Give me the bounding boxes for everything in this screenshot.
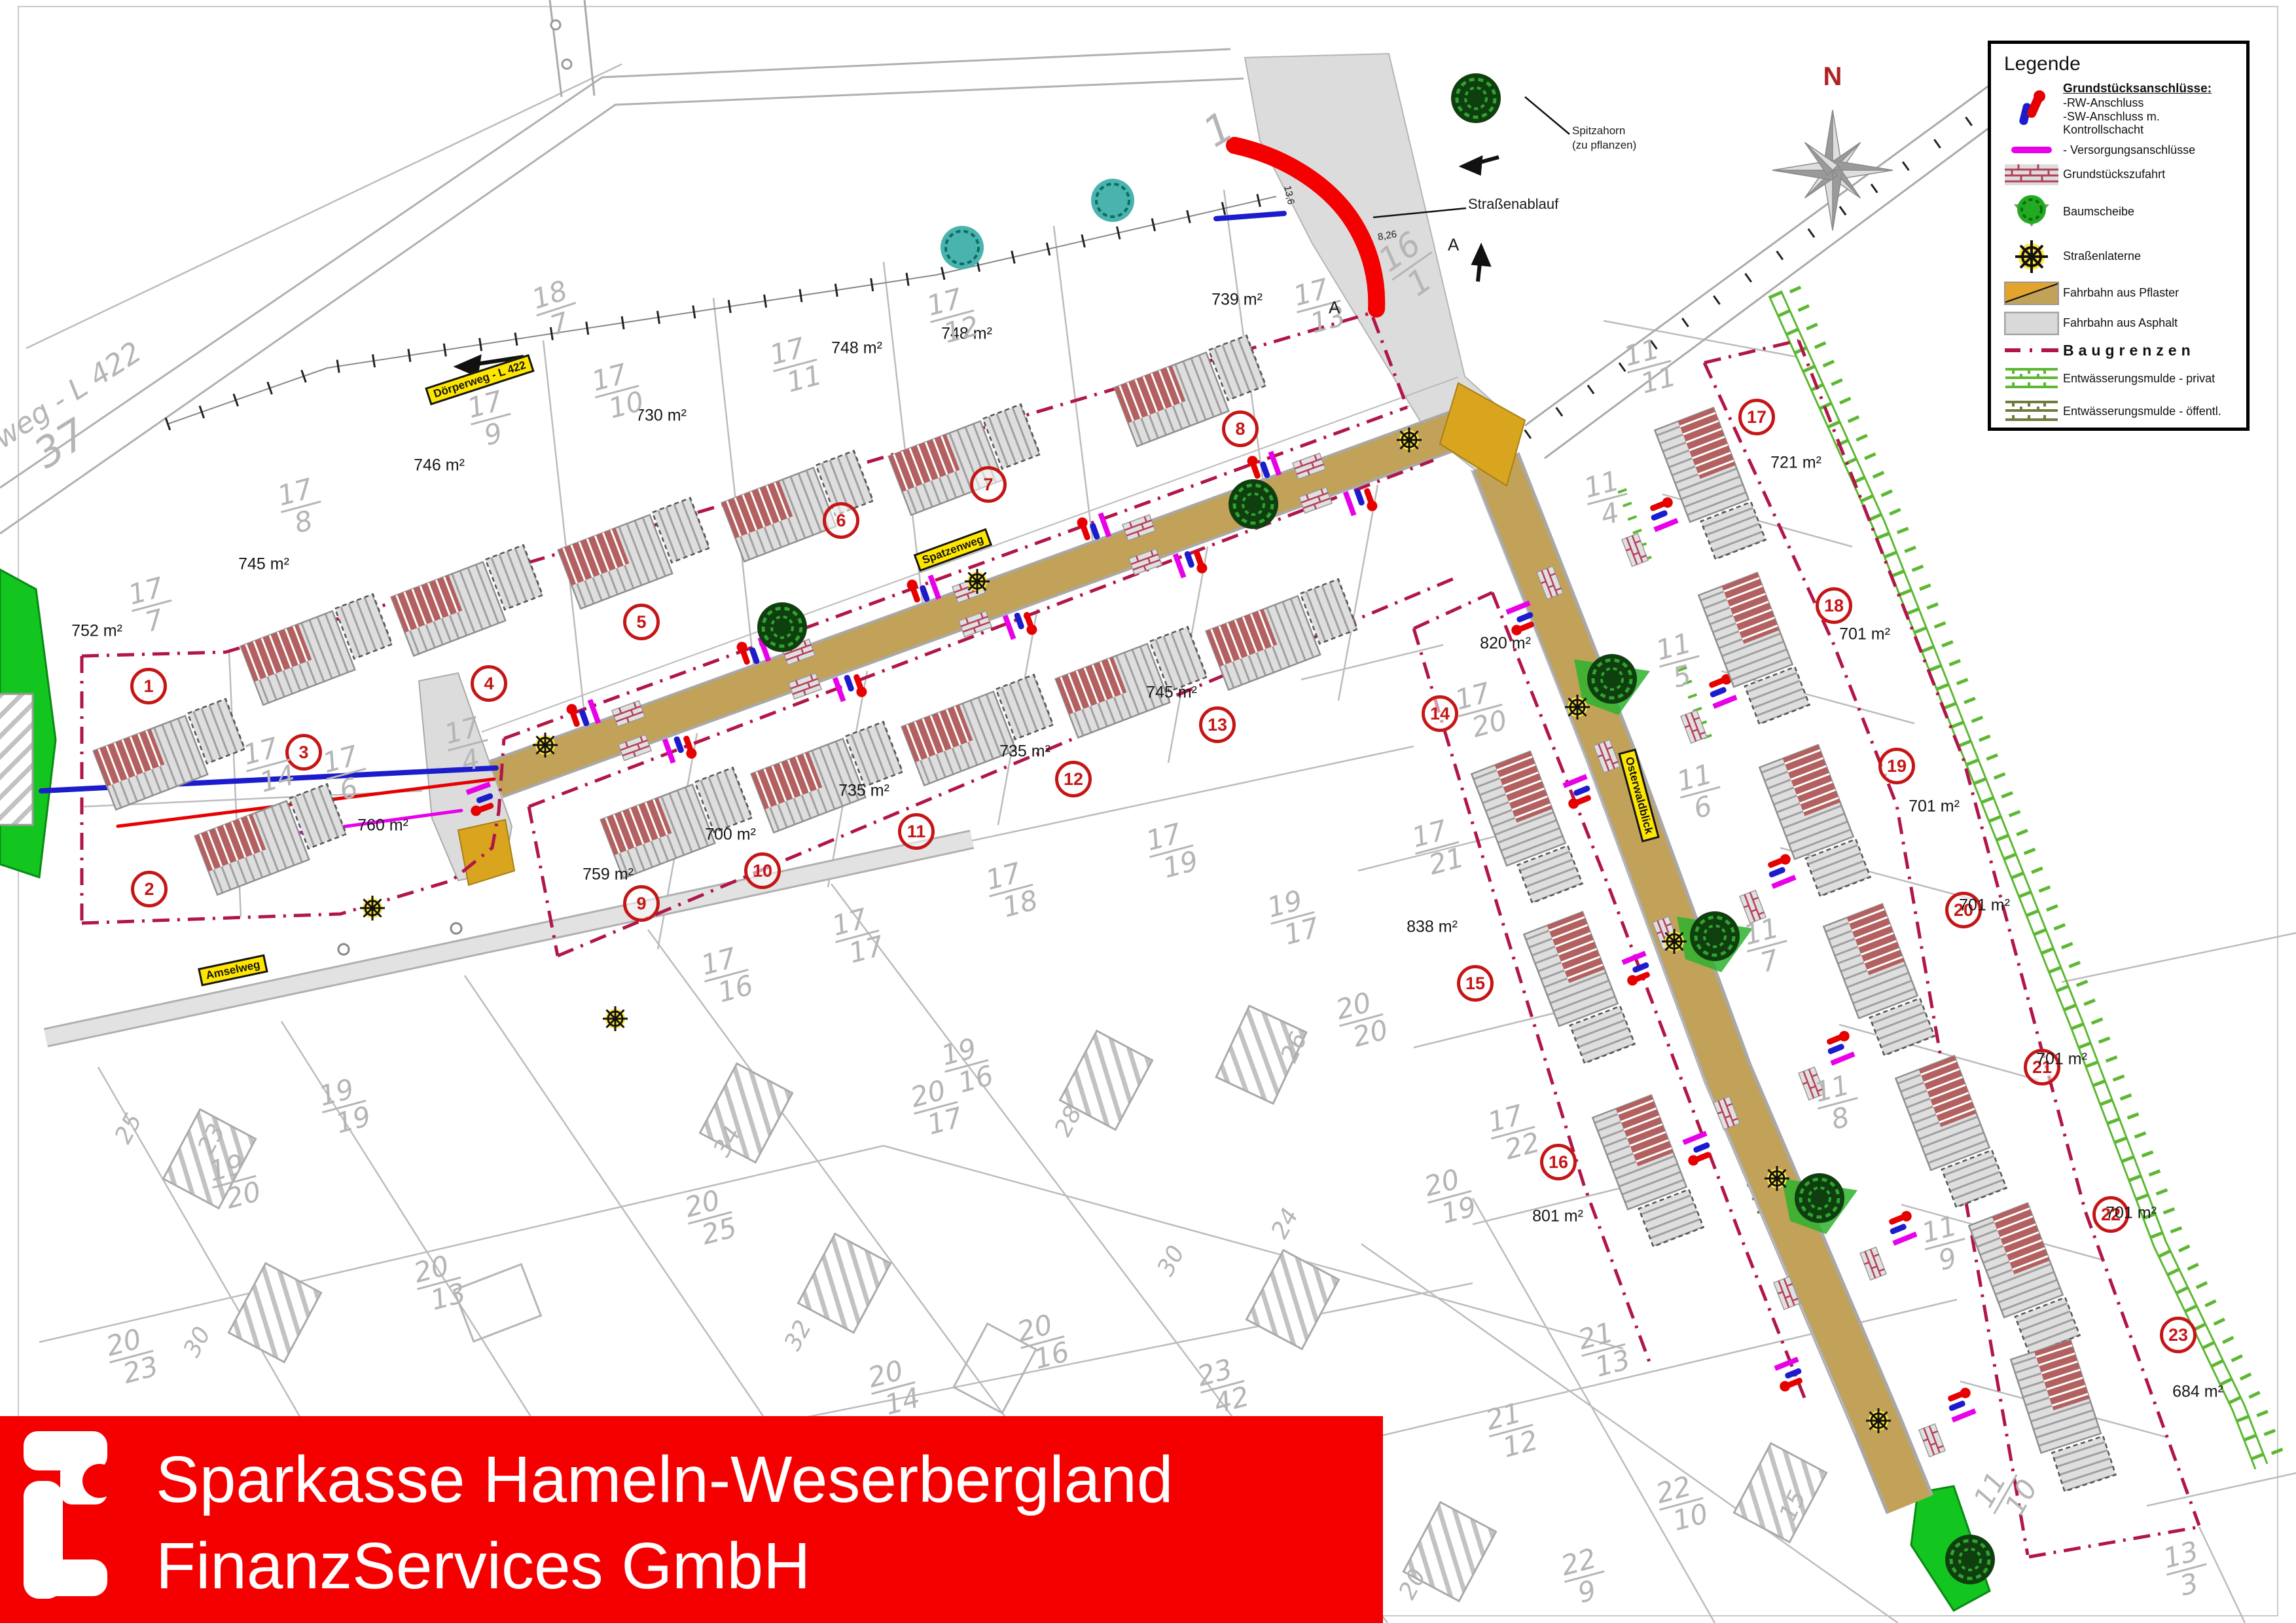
plot-number-marker: 17 — [1738, 399, 1775, 435]
plot-area-label: 701 m² — [1909, 797, 1960, 816]
legend-item: Baumscheibe — [2000, 192, 2240, 232]
parcel-number-label: 229 — [1557, 1544, 1612, 1609]
sparkasse-banner: Sparkasse Hameln-Weserbergland FinanzSer… — [0, 1416, 1383, 1623]
plot-number-marker: 18 — [1816, 587, 1852, 624]
plot-area-label: 701 m² — [1959, 896, 2010, 915]
plot-number-marker: 5 — [623, 604, 660, 640]
pavement-icon — [2000, 282, 2063, 305]
annotation-label: Spitzahorn — [1572, 124, 1625, 137]
connections-icon — [2000, 88, 2063, 130]
parcel-number-label: 178 — [274, 474, 329, 539]
parcel-number-label: 1721 — [1408, 814, 1467, 881]
parcel-number-label: 2025 — [681, 1184, 740, 1251]
plot-number-marker: 8 — [1222, 410, 1259, 447]
house-number-label: 25 — [112, 1110, 146, 1148]
plot-number-marker: 14 — [1422, 695, 1458, 732]
legend-item-label: Fahrbahn aus Pflaster — [2063, 286, 2179, 300]
house-number-label: 26 — [1278, 1029, 1311, 1066]
legend-item: Straßenlaterne — [2000, 238, 2240, 275]
house-number-label: 32 — [781, 1317, 816, 1355]
compass-north-label: N — [1823, 62, 1842, 92]
parcel-number-label: 2013 — [410, 1250, 469, 1317]
parcel-number-label: 1 — [1198, 106, 1240, 153]
parcel-number-label: 1917 — [1263, 884, 1322, 951]
house-number-label: 28 — [1052, 1103, 1086, 1140]
legend-item-label: Entwässerungsmulde - öffentl. — [2063, 405, 2221, 418]
supply-icon — [2000, 143, 2063, 156]
legend-item: Grundstücksanschlüsse:-RW-Anschluss-SW-A… — [2000, 82, 2240, 137]
house-number-label: 24 — [1268, 1205, 1302, 1243]
parcel-number-label: 1111 — [1620, 333, 1679, 400]
legend-title: Legende — [2004, 53, 2240, 75]
plot-number-marker: 2 — [131, 871, 168, 907]
parcel-number-label: 133 — [2159, 1537, 2214, 1602]
annotation-label: A — [1448, 235, 1459, 255]
house-number-label: 30 — [1155, 1243, 1189, 1280]
plot-area-label: 838 m² — [1407, 918, 1458, 937]
plot-number-marker: 11 — [898, 813, 935, 850]
legend-item-label: Grundstücksanschlüsse:-RW-Anschluss-SW-A… — [2063, 82, 2240, 137]
legend-item: Fahrbahn aus Asphalt — [2000, 312, 2240, 335]
area-label: 739 m² — [1211, 291, 1263, 310]
legend: Legende Grundstücksanschlüsse:-RW-Anschl… — [1988, 41, 2250, 431]
plot-area-label: 746 m² — [414, 456, 465, 475]
plot-area-label: 701 m² — [2106, 1204, 2157, 1223]
street-name-label: Osterwaldblick — [1618, 748, 1660, 842]
plot-number-marker: 7 — [970, 466, 1007, 503]
plot-area-label: 748 m² — [831, 339, 882, 358]
legend-item: Baugrenzen — [2000, 342, 2240, 359]
annotation-label: A — [1329, 298, 1340, 318]
parcel-number-label: 177 — [124, 573, 179, 638]
parcel-number-label: 115 — [1652, 629, 1707, 694]
legend-item-label: Baugrenzen — [2063, 342, 2195, 359]
parcel-number-label: 116 — [1673, 759, 1728, 825]
sparkasse-logo-icon — [0, 1416, 144, 1623]
legend-item-label: Fahrbahn aus Asphalt — [2063, 316, 2178, 330]
plot-number-marker: 23 — [2160, 1317, 2197, 1353]
swale-public-icon — [2000, 398, 2063, 424]
parcel-number-label: 1711 — [766, 332, 825, 399]
parcel-number-label: 1717 — [828, 903, 887, 970]
parcel-number-label: 1716 — [697, 942, 756, 1009]
legend-item: Fahrbahn aus Pflaster — [2000, 282, 2240, 305]
parcel-number-label: 1718 — [982, 857, 1041, 924]
parcel-number-label: 2014 — [864, 1355, 923, 1421]
legend-item-label: Entwässerungsmulde - privat — [2063, 372, 2215, 386]
legend-item: Entwässerungsmulde - öffentl. — [2000, 398, 2240, 424]
plot-area-label: 801 m² — [1532, 1207, 1583, 1226]
asphalt-icon — [2000, 312, 2063, 335]
compass-rose: N — [1770, 62, 1895, 285]
parcel-number-label: 176 — [319, 741, 374, 807]
parcel-number-label: 2019 — [1420, 1163, 1479, 1230]
plot-number-marker: 9 — [623, 885, 660, 922]
annotation-label: 13,6 — [1282, 185, 1297, 206]
house-number-label: 30 — [181, 1324, 215, 1361]
legend-item: - Versorgungsanschlüsse — [2000, 143, 2240, 157]
parcel-number-label: 1720 — [1451, 677, 1510, 744]
plot-area-label: 745 m² — [1146, 684, 1197, 702]
plot-number-marker: 16 — [1540, 1144, 1577, 1180]
tree-icon — [2000, 192, 2063, 232]
limit-icon — [2000, 346, 2063, 355]
legend-item-label: Grundstückszufahrt — [2063, 168, 2165, 181]
plot-number-marker: 10 — [744, 852, 781, 889]
lamp-icon — [2000, 238, 2063, 275]
site-plan-sheet: 1752 m²2760 m²3745 m²4746 m²5730 m²6748 … — [0, 0, 2296, 1623]
plot-area-label: 745 m² — [238, 555, 289, 574]
street-name-label: Amselweg — [198, 954, 268, 986]
parcel-number-label: 1919 — [315, 1073, 374, 1140]
parcel-number-label: 119 — [1918, 1211, 1973, 1277]
plot-area-label: 735 m² — [999, 742, 1050, 761]
parcel-number-label: 1110 — [1969, 1460, 2041, 1528]
plot-area-label: 701 m² — [2036, 1050, 2087, 1069]
parcel-number-label: 2020 — [1332, 987, 1391, 1053]
parcel-number-label: 2113 — [1574, 1317, 1633, 1383]
parcel-number-label: 114 — [1580, 466, 1635, 532]
plot-area-label: 820 m² — [1480, 634, 1531, 653]
legend-item: Grundstückszufahrt — [2000, 164, 2240, 186]
parcel-number-label: 118 — [1810, 1070, 1865, 1136]
plot-area-label: 752 m² — [71, 622, 122, 641]
banner-line1: Sparkasse Hameln-Weserbergland — [156, 1442, 1173, 1518]
plot-area-label: 701 m² — [1839, 625, 1890, 644]
parcel-number-label: 2023 — [102, 1323, 161, 1390]
plot-number-marker: 6 — [823, 502, 859, 539]
parcel-number-label: 1920 — [205, 1148, 264, 1215]
parcel-number-label: 174 — [440, 712, 495, 778]
plot-area-label: 684 m² — [2172, 1383, 2223, 1402]
driveway-icon — [2000, 164, 2063, 186]
parcel-number-label: 1712 — [923, 283, 982, 350]
parcel-number-label: 1722 — [1484, 1099, 1543, 1166]
parcel-number-label: 2210 — [1652, 1470, 1711, 1537]
parcel-number-label: 2016 — [1013, 1309, 1072, 1376]
plot-number-marker: 4 — [471, 665, 507, 702]
house-number-label: 20 — [1396, 1566, 1430, 1603]
plot-area-label: 721 m² — [1770, 454, 1821, 473]
annotation-label: Straßenablauf — [1468, 196, 1558, 213]
plot-number-marker: 19 — [1878, 748, 1915, 784]
plot-area-label: 735 m² — [838, 782, 889, 801]
house-number-label: 34 — [711, 1123, 745, 1161]
parcel-number-label: 1710 — [588, 358, 647, 425]
parcel-number-label: 2342 — [1193, 1353, 1252, 1420]
street-name-label: Spatzenweg — [914, 528, 993, 572]
parcel-number-label: 179 — [463, 386, 518, 452]
plot-area-label: 759 m² — [583, 866, 634, 884]
legend-item-label: Baumscheibe — [2063, 205, 2134, 219]
annotation-label: (zu pflanzen) — [1572, 139, 1636, 152]
plot-number-marker: 12 — [1055, 761, 1092, 797]
swale-private-icon — [2000, 365, 2063, 392]
plot-area-label: 760 m² — [357, 816, 408, 835]
legend-item-label: Straßenlaterne — [2063, 249, 2141, 263]
parcel-number-label: 2112 — [1482, 1397, 1541, 1464]
legend-item: Entwässerungsmulde - privat — [2000, 365, 2240, 392]
parcel-number-label: 187 — [528, 276, 584, 342]
map-labels-layer: 1752 m²2760 m²3745 m²4746 m²5730 m²6748 … — [0, 0, 2296, 1623]
parcel-number-label: 1719 — [1142, 818, 1201, 884]
plot-number-marker: 15 — [1457, 965, 1494, 1002]
plot-number-marker: 1 — [130, 668, 167, 704]
legend-item-label: - Versorgungsanschlüsse — [2063, 143, 2195, 157]
house-number-label: 15 — [1777, 1487, 1810, 1524]
banner-line2: FinanzServices GmbH — [156, 1529, 810, 1604]
parcel-number-label: 117 — [1740, 913, 1795, 979]
plot-area-label: 700 m² — [705, 826, 756, 845]
plot-number-marker: 13 — [1199, 706, 1236, 743]
